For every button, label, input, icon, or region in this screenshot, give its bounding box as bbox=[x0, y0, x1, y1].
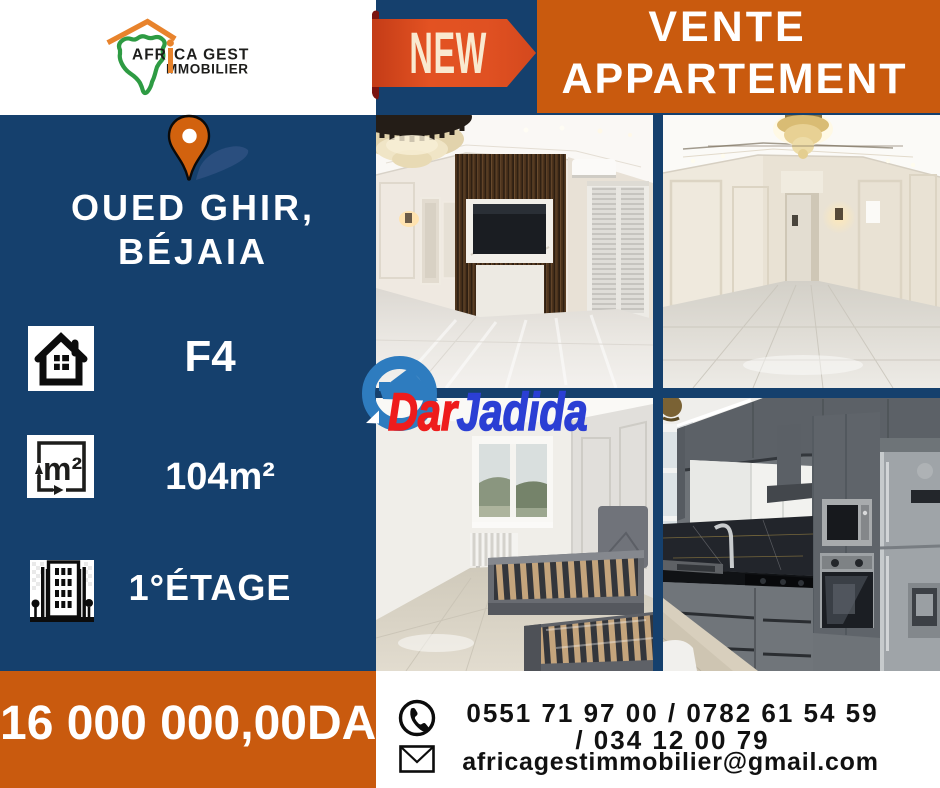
svg-text:MMOBILIER: MMOBILIER bbox=[166, 62, 249, 77]
svg-text:AFR: AFR bbox=[132, 47, 167, 64]
svg-text:m²: m² bbox=[43, 451, 82, 487]
svg-text:Jadida: Jadida bbox=[457, 383, 588, 442]
svg-text:Dar: Dar bbox=[388, 383, 459, 442]
